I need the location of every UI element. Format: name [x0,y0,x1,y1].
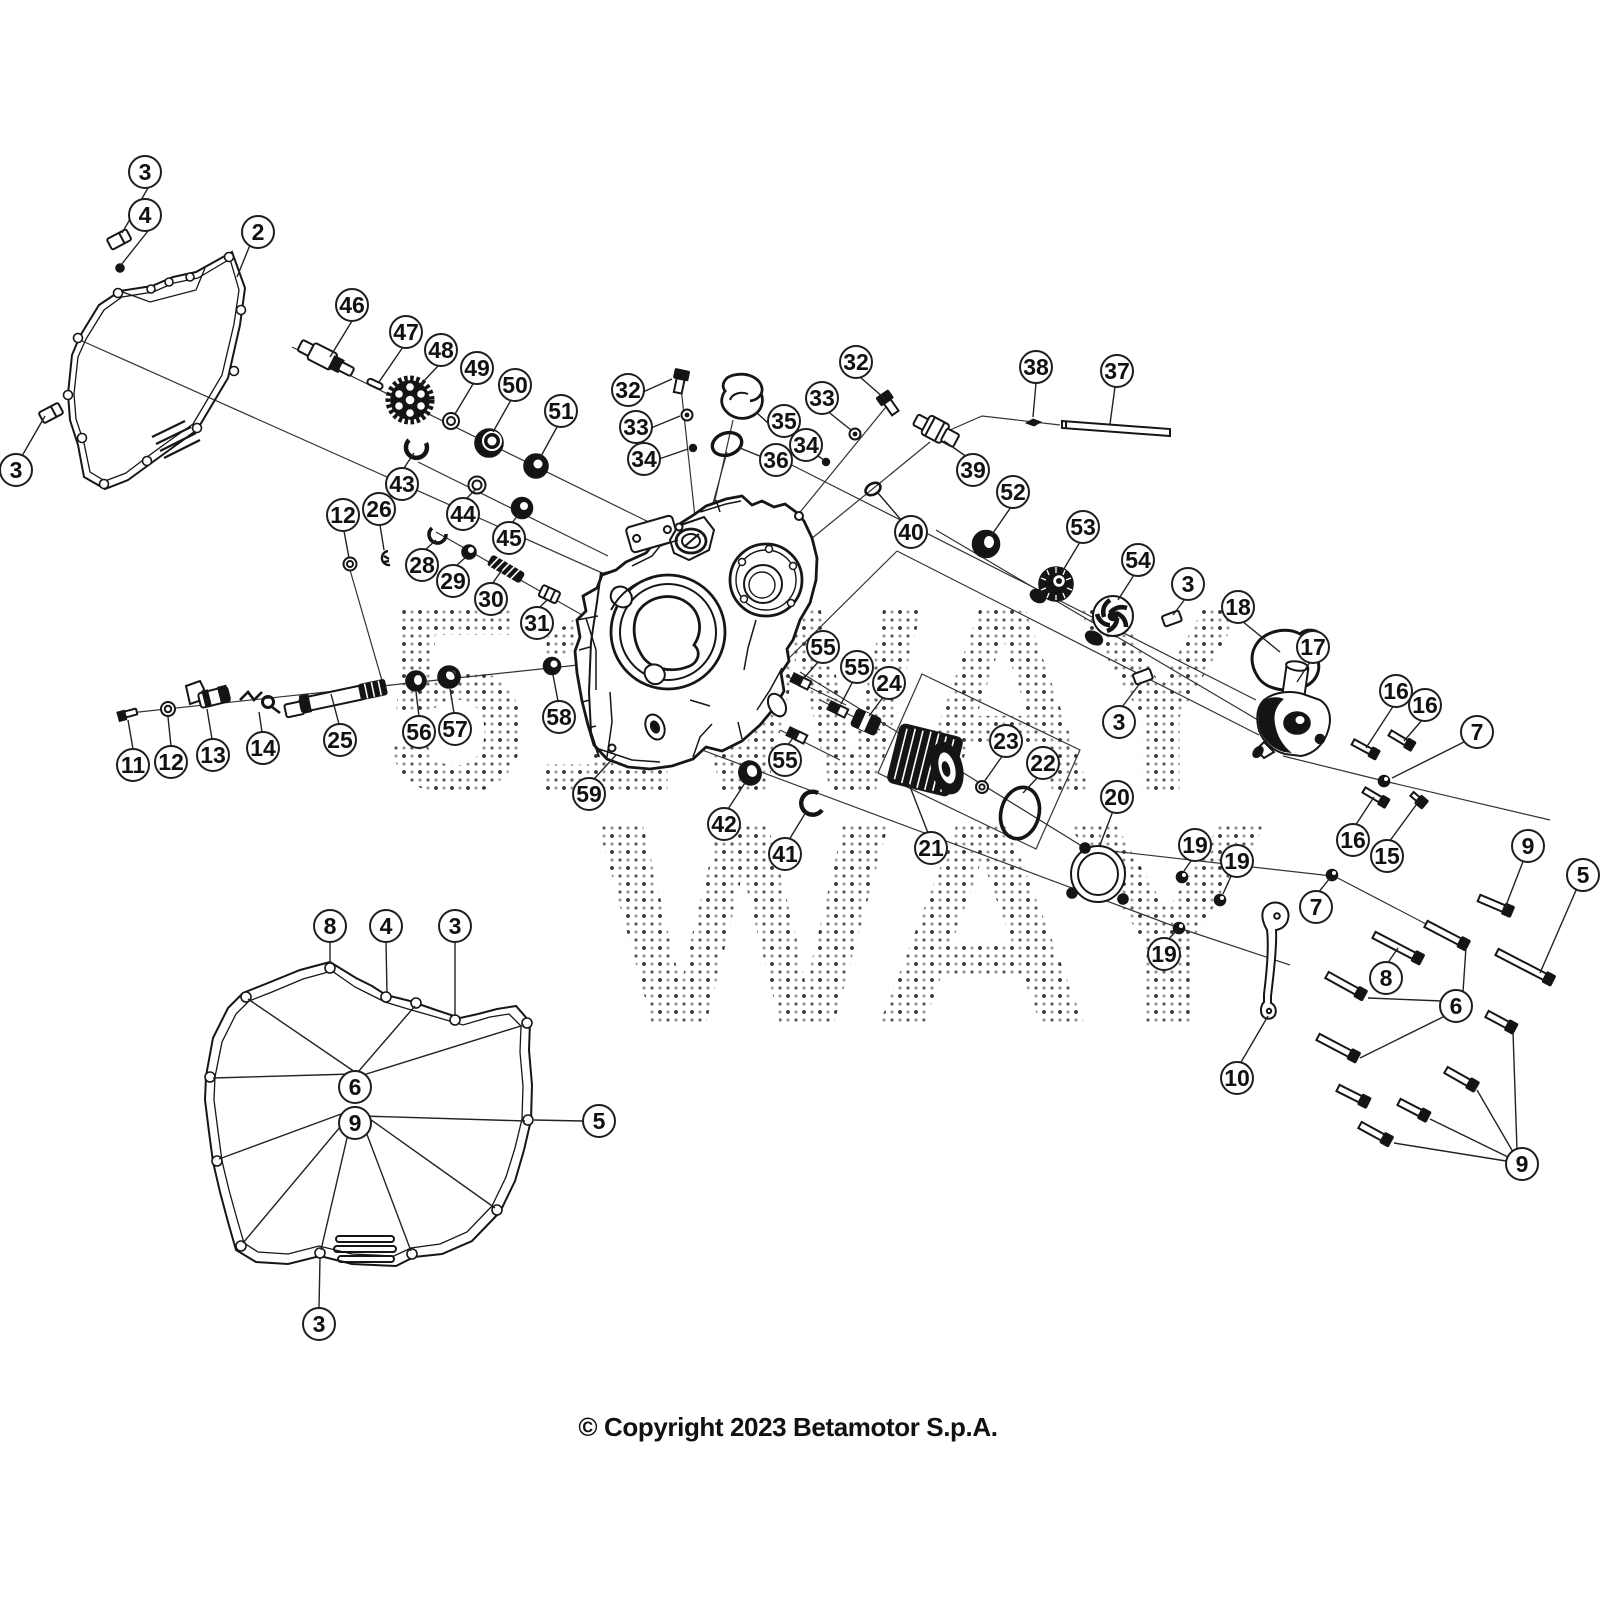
svg-text:2: 2 [252,219,265,245]
svg-text:3: 3 [313,1311,326,1337]
svg-text:56: 56 [406,719,432,745]
svg-text:8: 8 [1380,965,1393,991]
svg-text:17: 17 [1300,634,1326,660]
svg-text:58: 58 [546,704,572,730]
svg-text:26: 26 [366,496,392,522]
svg-text:31: 31 [524,610,550,636]
svg-text:37: 37 [1104,358,1130,384]
svg-text:49: 49 [464,355,490,381]
svg-text:4: 4 [139,202,152,228]
svg-text:14: 14 [250,735,276,761]
svg-text:7: 7 [1471,719,1484,745]
svg-text:24: 24 [876,670,902,696]
svg-text:48: 48 [428,337,454,363]
svg-text:3: 3 [139,159,152,185]
svg-text:19: 19 [1182,832,1208,858]
svg-text:47: 47 [393,319,419,345]
svg-text:9: 9 [349,1110,362,1136]
svg-text:3: 3 [1182,571,1195,597]
svg-text:6: 6 [349,1074,362,1100]
svg-text:12: 12 [158,749,184,775]
svg-text:6: 6 [1450,993,1463,1019]
svg-text:4: 4 [380,913,393,939]
svg-text:44: 44 [450,501,476,527]
svg-text:41: 41 [772,841,798,867]
svg-text:18: 18 [1225,594,1251,620]
svg-text:50: 50 [502,372,528,398]
svg-text:55: 55 [844,654,870,680]
svg-text:33: 33 [809,385,835,411]
svg-text:20: 20 [1104,784,1130,810]
svg-text:53: 53 [1070,514,1096,540]
svg-text:51: 51 [548,398,574,424]
svg-text:19: 19 [1151,941,1177,967]
svg-text:12: 12 [330,502,356,528]
svg-text:16: 16 [1340,827,1366,853]
svg-text:46: 46 [339,292,365,318]
svg-text:8: 8 [324,913,337,939]
svg-text:3: 3 [1113,709,1126,735]
svg-text:34: 34 [793,432,819,458]
svg-text:43: 43 [389,471,415,497]
svg-text:30: 30 [478,586,504,612]
svg-text:40: 40 [898,519,924,545]
svg-text:21: 21 [918,835,944,861]
svg-text:10: 10 [1224,1065,1250,1091]
svg-text:13: 13 [200,742,226,768]
svg-text:5: 5 [1577,862,1590,888]
svg-text:34: 34 [631,446,657,472]
svg-text:39: 39 [960,457,986,483]
svg-text:11: 11 [121,752,146,778]
svg-text:35: 35 [771,408,797,434]
svg-text:38: 38 [1023,354,1049,380]
svg-text:57: 57 [442,716,468,742]
svg-text:5: 5 [593,1108,606,1134]
svg-text:45: 45 [496,525,522,551]
svg-text:42: 42 [711,811,737,837]
svg-text:WAY: WAY [598,764,1270,1088]
svg-text:32: 32 [615,377,641,403]
svg-text:3: 3 [449,913,462,939]
svg-text:9: 9 [1516,1151,1529,1177]
svg-text:3: 3 [10,457,23,483]
svg-text:29: 29 [440,568,466,594]
svg-text:55: 55 [810,634,836,660]
svg-text:54: 54 [1125,547,1151,573]
svg-text:52: 52 [1000,479,1026,505]
svg-text:25: 25 [327,727,353,753]
svg-text:33: 33 [623,414,649,440]
svg-text:16: 16 [1412,692,1438,718]
svg-text:7: 7 [1310,894,1323,920]
svg-text:© Copyright 2023 Betamotor S.p: © Copyright 2023 Betamotor S.p.A. [578,1412,997,1442]
svg-text:22: 22 [1030,750,1056,776]
svg-text:32: 32 [843,349,869,375]
svg-text:36: 36 [763,447,789,473]
svg-text:9: 9 [1522,833,1535,859]
svg-text:55: 55 [772,747,798,773]
svg-text:59: 59 [576,781,602,807]
svg-text:15: 15 [1374,843,1400,869]
svg-text:28: 28 [409,552,435,578]
svg-text:19: 19 [1224,848,1250,874]
svg-text:23: 23 [993,728,1019,754]
svg-text:16: 16 [1383,678,1409,704]
